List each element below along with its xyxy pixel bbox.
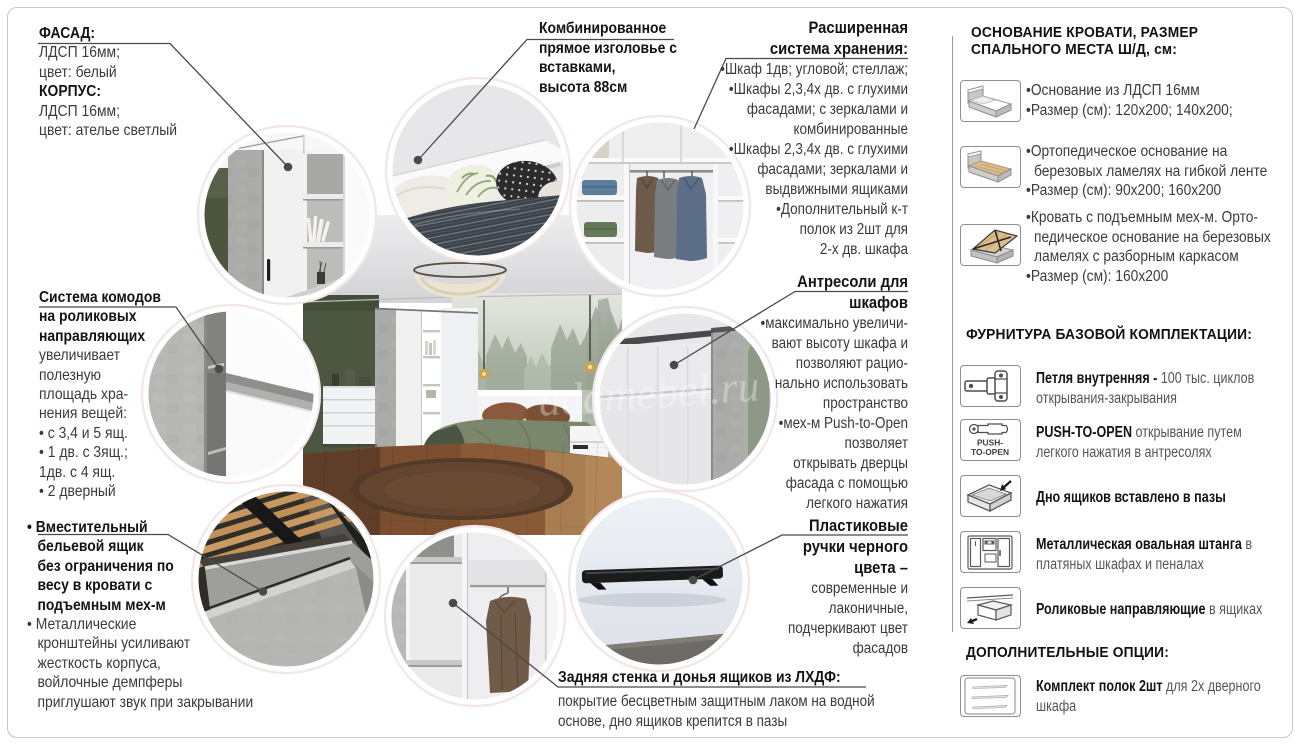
- svg-text:PUSH-: PUSH-: [977, 438, 1003, 448]
- svg-text:TO-OPEN: TO-OPEN: [971, 447, 1009, 457]
